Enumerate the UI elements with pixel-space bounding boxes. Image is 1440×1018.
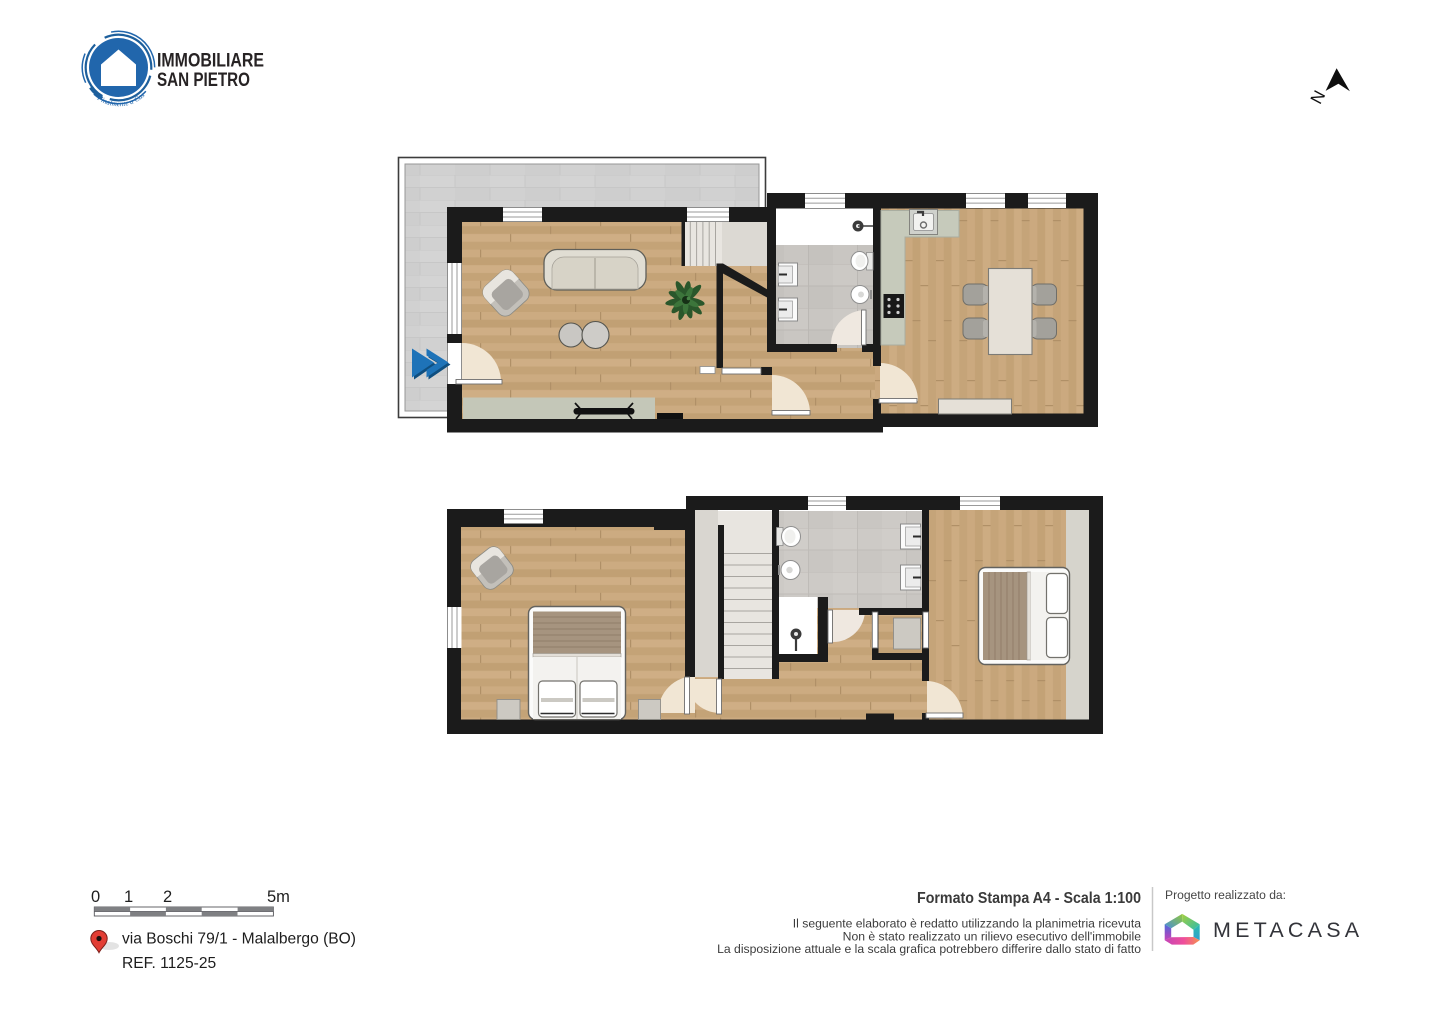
svg-text:5m: 5m xyxy=(267,888,290,906)
svg-text:via Boschi 79/1 - Malalbergo (: via Boschi 79/1 - Malalbergo (BO) xyxy=(122,931,356,948)
svg-text:SAN PIETRO: SAN PIETRO xyxy=(157,69,250,91)
svg-text:1: 1 xyxy=(124,888,133,906)
svg-text:Formato Stampa A4 - Scala 1:10: Formato Stampa A4 - Scala 1:100 xyxy=(917,890,1141,907)
svg-text:Progetto realizzato da:: Progetto realizzato da: xyxy=(1165,888,1286,902)
svg-text:METACASA: METACASA xyxy=(1213,918,1363,942)
svg-text:2: 2 xyxy=(163,888,172,906)
svg-text:La disposizione attuale e la s: La disposizione attuale e la scala grafi… xyxy=(717,942,1141,956)
svg-text:REF. 1125-25: REF. 1125-25 xyxy=(122,955,217,972)
svg-text:N: N xyxy=(1307,87,1330,107)
svg-text:0: 0 xyxy=(91,888,100,906)
